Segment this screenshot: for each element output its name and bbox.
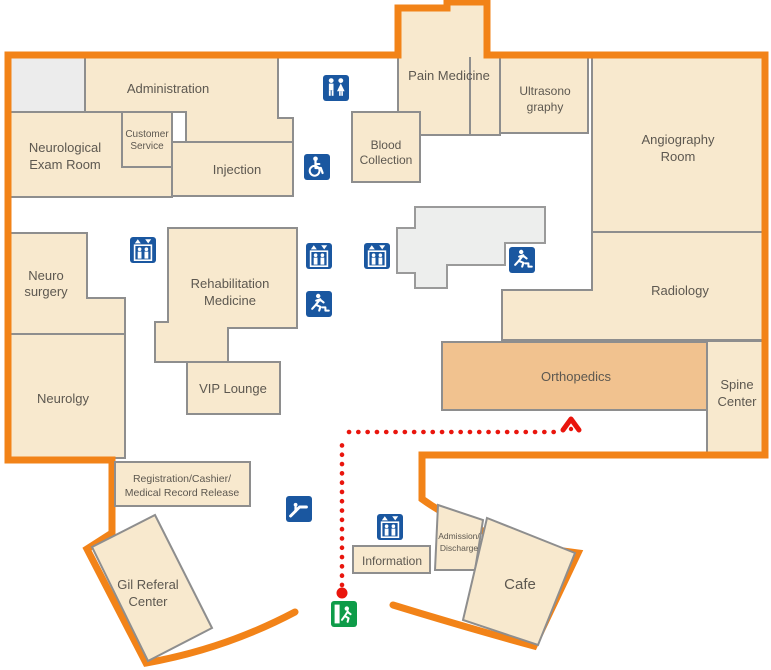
blood-collection-label-2: Collection <box>360 153 413 167</box>
customer-service-label-1: Customer <box>125 129 169 140</box>
elevator-icon <box>364 243 390 269</box>
neurology-label: Neurolgy <box>37 391 90 406</box>
vip-lounge-label: VIP Lounge <box>199 381 267 396</box>
restroom-icon <box>323 75 349 101</box>
hospital-floor-map: Administration Neurological Exam Room Cu… <box>0 0 771 670</box>
rehabilitation-label-2: Medicine <box>204 293 256 308</box>
neuro-surgery-label-2: surgery <box>24 284 68 299</box>
ultrasonography-label-2: graphy <box>527 100 564 114</box>
neuro-surgery-label-1: Neuro <box>28 268 63 283</box>
radiology-label: Radiology <box>651 283 709 298</box>
rehabilitation-label-1: Rehabilitation <box>191 276 270 291</box>
wheelchair-accessible-icon <box>304 154 330 180</box>
injection-label: Injection <box>213 162 261 177</box>
floor-map-canvas: Administration Neurological Exam Room Cu… <box>0 0 771 670</box>
room-utility-gray[interactable] <box>8 57 85 112</box>
escalator-icon <box>286 496 312 522</box>
room-radiology[interactable] <box>502 232 765 340</box>
blood-collection-label-1: Blood <box>371 138 402 152</box>
admission-discharge-label-1: Admission/ <box>438 531 480 541</box>
information-label: Information <box>362 554 422 568</box>
registration-label-2: Medical Record Release <box>125 487 240 499</box>
elevator-icon <box>377 514 403 540</box>
angiography-label-2: Room <box>661 149 696 164</box>
cafe-label: Cafe <box>504 576 536 593</box>
elevator-icon <box>130 237 156 263</box>
registration-label-1: Registration/Cashier/ <box>133 473 231 485</box>
angiography-label-1: Angiography <box>642 132 715 147</box>
gil-referal-label-1: Gil Referal <box>117 577 179 592</box>
exit-door-icon <box>331 601 357 627</box>
customer-service-label-2: Service <box>130 141 164 152</box>
gil-referal-label-2: Center <box>128 594 168 609</box>
neurological-exam-label-1: Neurological <box>29 140 101 155</box>
pain-medicine-label: Pain Medicine <box>408 68 490 83</box>
admission-discharge-label-2: Discharge <box>440 543 479 553</box>
route-start-dot <box>337 588 348 599</box>
administration-label: Administration <box>127 81 209 96</box>
ultrasonography-label-1: Ultrasono <box>519 84 571 98</box>
rooms-layer <box>8 2 766 458</box>
route-arrow-dot <box>569 427 573 431</box>
neurological-exam-label-2: Exam Room <box>29 157 101 172</box>
spine-center-label-1: Spine <box>720 377 753 392</box>
spine-center-label-2: Center <box>717 394 757 409</box>
emergency-exit-icon <box>306 291 332 317</box>
elevator-icon <box>306 243 332 269</box>
emergency-exit-icon <box>509 247 535 273</box>
orthopedics-label: Orthopedics <box>541 369 612 384</box>
